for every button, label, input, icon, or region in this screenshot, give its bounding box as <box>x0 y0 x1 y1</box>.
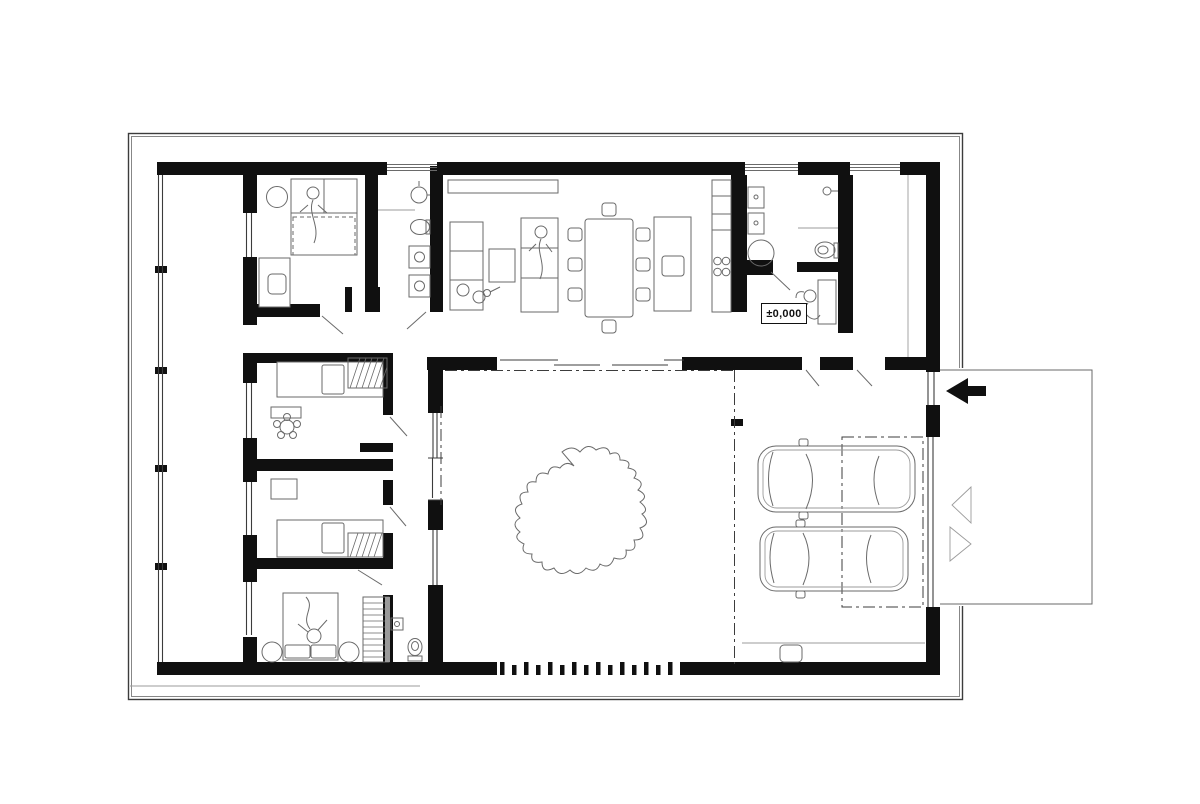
courtyard-tree-icon <box>515 446 647 573</box>
carport-outline <box>842 437 923 607</box>
bedroom-2 <box>271 358 387 439</box>
wall-tap-icon <box>823 187 838 195</box>
bathroom-2 <box>748 187 838 266</box>
master-bedroom <box>262 593 390 662</box>
person-on-sofa-icon <box>529 226 552 279</box>
floor-plan-drawing <box>0 0 1200 804</box>
bathroom-1 <box>409 181 430 297</box>
roof-overhang-lines <box>441 370 735 664</box>
wc <box>391 618 422 661</box>
bedroom-1 <box>259 179 357 307</box>
floor-plan-page: ±0,000 <box>0 0 1200 804</box>
toilet-icon <box>408 639 422 662</box>
wardrobe-rail-icon <box>363 597 390 662</box>
person-with-guitar-icon <box>457 284 500 303</box>
car-icon <box>758 439 915 519</box>
louver-screen <box>500 662 685 675</box>
sink-icon <box>411 181 430 203</box>
kitchen <box>654 180 731 312</box>
toilet-icon <box>815 242 838 258</box>
living-room <box>448 180 558 312</box>
car-icon <box>760 520 908 598</box>
toilet-icon <box>411 220 431 235</box>
driveway <box>938 368 1095 606</box>
bedroom-3 <box>271 479 383 557</box>
desk-chair-icon <box>274 414 301 439</box>
level-label: ±0,000 <box>761 303 807 324</box>
garage <box>758 439 915 662</box>
washer-icon <box>409 246 430 268</box>
cooktop-icon <box>714 257 730 276</box>
dryer-icon <box>409 275 430 297</box>
dining-area <box>568 203 650 333</box>
